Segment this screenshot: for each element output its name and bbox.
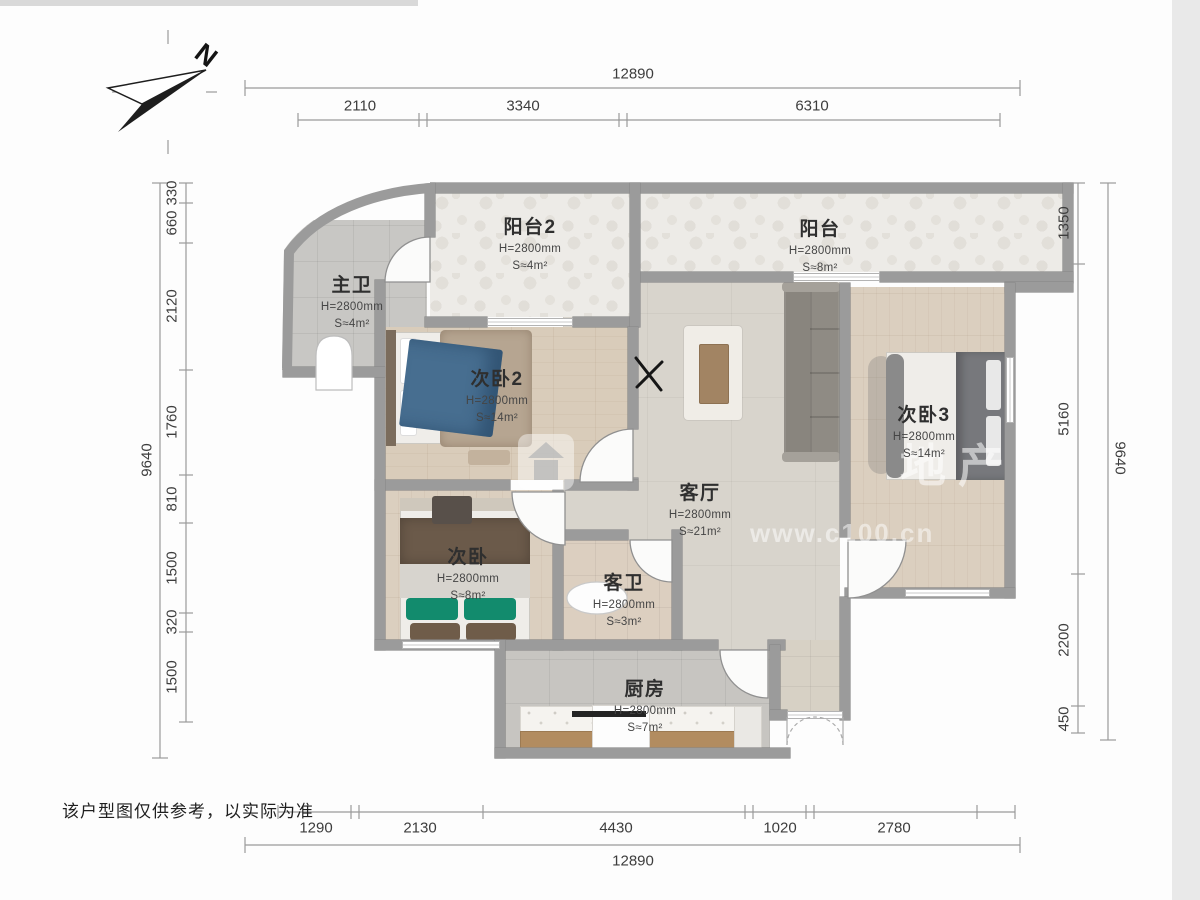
dim-bottom: 4430 — [599, 820, 632, 837]
wall — [840, 283, 850, 537]
wall — [565, 480, 638, 490]
dim-bottom: 1290 — [299, 820, 332, 837]
room-label-living: 客厅 H=2800mm S≈21m² — [669, 482, 731, 540]
dim-left: 1500 — [164, 551, 181, 584]
room-label-balcony: 阳台 H=2800mm S≈8m² — [789, 218, 851, 276]
room-height: H=2800mm — [614, 704, 676, 719]
room-height: H=2800mm — [499, 242, 561, 257]
dim-bottom-total: 12890 — [612, 853, 654, 870]
dim-left: 660 — [164, 210, 181, 235]
room-name: 次卧3 — [893, 404, 955, 428]
dim-right: 450 — [1056, 706, 1073, 731]
wall — [573, 317, 637, 327]
room-height: H=2800mm — [669, 508, 731, 523]
entry-floor — [780, 640, 840, 717]
sofa-armrest — [782, 452, 840, 462]
dim-right: 5160 — [1056, 402, 1073, 435]
room-name: 阳台 — [789, 218, 851, 242]
wall — [1005, 283, 1015, 598]
room-name: 次卧 — [437, 546, 499, 570]
room-area: S≈14m² — [466, 411, 528, 426]
wall — [880, 272, 1073, 282]
dim-bottom: 1020 — [763, 820, 796, 837]
room-label-balcony2: 阳台2 H=2800mm S≈4m² — [499, 216, 561, 274]
dim-right: 2200 — [1056, 623, 1073, 656]
wall — [425, 183, 435, 237]
wall — [840, 597, 850, 720]
room-area: S≈14m² — [893, 447, 955, 462]
wall — [425, 183, 1073, 193]
room-area: S≈4m² — [499, 259, 561, 274]
kitchen-appliance — [734, 706, 762, 751]
dim-left: 810 — [164, 486, 181, 511]
dim-left: 320 — [164, 609, 181, 634]
floor-plan-page: 地产 www.c100.cn 阳台2 H=2800mm S≈4m² 阳台 H=2… — [0, 0, 1200, 900]
room-name: 阳台2 — [499, 216, 561, 240]
wall — [633, 272, 793, 282]
window — [905, 589, 990, 597]
sofa-armrest — [782, 282, 840, 292]
wall — [553, 490, 563, 650]
bedroom-brown-pillow — [466, 623, 516, 641]
entry-threshold — [787, 711, 843, 719]
room-label-guest-bath: 客卫 H=2800mm S≈3m² — [593, 572, 655, 630]
sliding-door — [487, 318, 573, 326]
wall — [495, 640, 505, 758]
top-edge-strip — [0, 0, 418, 6]
dim-left-total: 9640 — [139, 443, 156, 476]
wall — [283, 367, 385, 377]
room-name: 厨房 — [614, 678, 676, 702]
room-label-bedroom: 次卧 H=2800mm S≈8m² — [437, 546, 499, 604]
coffee-table — [699, 344, 729, 404]
room-area: S≈8m² — [437, 589, 499, 604]
room-height: H=2800mm — [466, 394, 528, 409]
room-name: 主卫 — [321, 274, 383, 298]
bedroom2-headboard — [386, 330, 396, 446]
bedroom3-pillow — [986, 416, 1001, 466]
room-height: H=2800mm — [321, 300, 383, 315]
disclaimer-text: 该户型图仅供参考，以实际为准 — [62, 797, 314, 822]
sofa — [784, 284, 840, 460]
room-area: S≈4m² — [321, 317, 383, 332]
dim-right-total: 9640 — [1112, 441, 1129, 474]
wall — [630, 183, 640, 327]
room-height: H=2800mm — [893, 430, 955, 445]
wall — [672, 530, 682, 650]
bedroom-throw — [432, 496, 472, 524]
room-area: S≈8m² — [789, 261, 851, 276]
wall — [495, 748, 790, 758]
wall — [1005, 282, 1073, 292]
room-area: S≈21m² — [669, 525, 731, 540]
balcony-floor — [640, 193, 1066, 272]
room-name: 客卫 — [593, 572, 655, 596]
entry-double-door — [787, 717, 843, 745]
window — [402, 641, 500, 649]
bedroom2-bench — [468, 450, 510, 465]
room-height: H=2800mm — [593, 598, 655, 613]
dim-left: 2120 — [164, 289, 181, 322]
dim-bottom: 2780 — [877, 820, 910, 837]
compass-arrow-icon — [108, 70, 206, 132]
room-height: H=2800mm — [437, 572, 499, 587]
bedroom-brown-pillow — [410, 623, 460, 641]
dim-top-total: 12890 — [612, 66, 654, 83]
room-label-bedroom2: 次卧2 H=2800mm S≈14m² — [466, 368, 528, 426]
room-area: S≈3m² — [593, 615, 655, 630]
room-label-master-bath: 主卫 H=2800mm S≈4m² — [321, 274, 383, 332]
wall — [495, 640, 718, 650]
room-height: H=2800mm — [789, 244, 851, 259]
room-label-bedroom3: 次卧3 H=2800mm S≈14m² — [893, 404, 955, 462]
bedroom3-pillow — [986, 360, 1001, 410]
watermark-house-icon — [518, 434, 574, 490]
room-name: 次卧2 — [466, 368, 528, 392]
right-edge-strip — [1172, 0, 1200, 900]
dim-right: 1350 — [1056, 206, 1073, 239]
wall — [628, 327, 638, 429]
wall — [770, 645, 780, 715]
wall — [375, 480, 510, 490]
wall — [770, 710, 787, 720]
wall — [553, 530, 628, 540]
dim-top: 6310 — [795, 98, 828, 115]
wall — [425, 317, 487, 327]
compass-north-label: N — [189, 37, 223, 73]
window — [1006, 357, 1014, 423]
dim-left: 330 — [164, 180, 181, 205]
dim-left: 1500 — [164, 660, 181, 693]
dim-top: 2110 — [344, 98, 376, 115]
dim-top: 3340 — [506, 98, 539, 115]
dim-bottom: 2130 — [403, 820, 436, 837]
room-area: S≈7m² — [614, 721, 676, 736]
dim-left: 1760 — [164, 405, 181, 438]
room-label-kitchen: 厨房 H=2800mm S≈7m² — [614, 678, 676, 736]
room-name: 客厅 — [669, 482, 731, 506]
wall — [375, 280, 385, 650]
